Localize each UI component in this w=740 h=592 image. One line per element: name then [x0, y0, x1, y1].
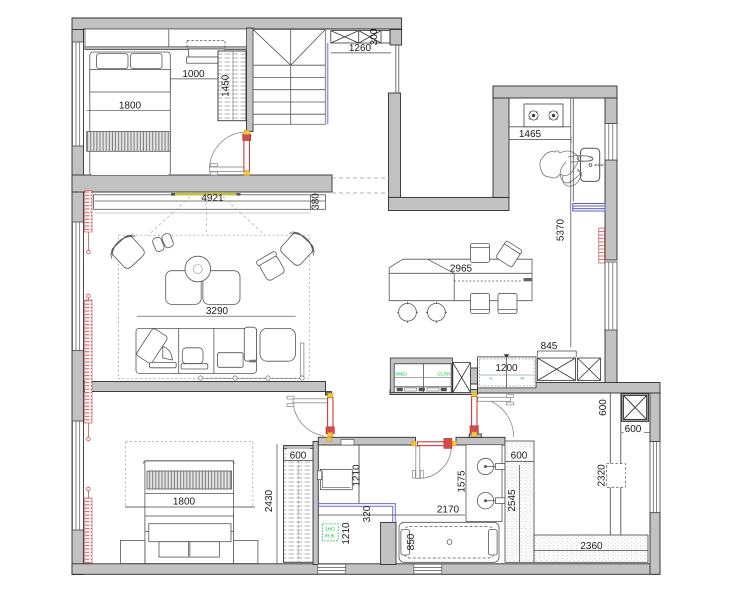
svg-text:3290: 3290 [206, 306, 229, 317]
svg-text:845: 845 [541, 341, 558, 352]
svg-text:850: 850 [406, 533, 417, 550]
svg-text:4L: 4L [489, 377, 493, 381]
svg-text:2545: 2545 [507, 489, 518, 512]
svg-text:4R: 4R [520, 377, 525, 381]
svg-text:CLSH: CLSH [438, 372, 451, 378]
svg-text:1450: 1450 [221, 74, 232, 97]
svg-text:380: 380 [311, 193, 322, 210]
svg-text:2170: 2170 [437, 505, 460, 516]
svg-text:2320: 2320 [597, 464, 608, 487]
svg-text:2360: 2360 [580, 541, 603, 552]
svg-text:5370: 5370 [556, 218, 567, 241]
svg-text:600: 600 [511, 451, 528, 462]
svg-text:叶水: 叶水 [325, 533, 335, 540]
svg-text:1465: 1465 [519, 129, 542, 140]
svg-text:2430: 2430 [264, 489, 275, 512]
svg-text:1800: 1800 [119, 100, 142, 111]
svg-text:1800: 1800 [173, 497, 196, 508]
svg-text:1210: 1210 [341, 522, 352, 545]
svg-text:1200: 1200 [495, 363, 518, 374]
svg-text:600: 600 [290, 451, 307, 462]
svg-text:4921: 4921 [201, 193, 224, 204]
svg-text:1000: 1000 [182, 69, 205, 80]
svg-text:1210: 1210 [352, 464, 363, 487]
svg-text:1260: 1260 [349, 43, 372, 54]
svg-text:320: 320 [362, 505, 373, 522]
svg-text:2965: 2965 [450, 264, 473, 275]
svg-text:600: 600 [598, 399, 609, 416]
svg-text:W&D: W&D [396, 372, 408, 378]
svg-text:1HG: 1HG [325, 527, 335, 533]
svg-text:600: 600 [625, 424, 642, 435]
